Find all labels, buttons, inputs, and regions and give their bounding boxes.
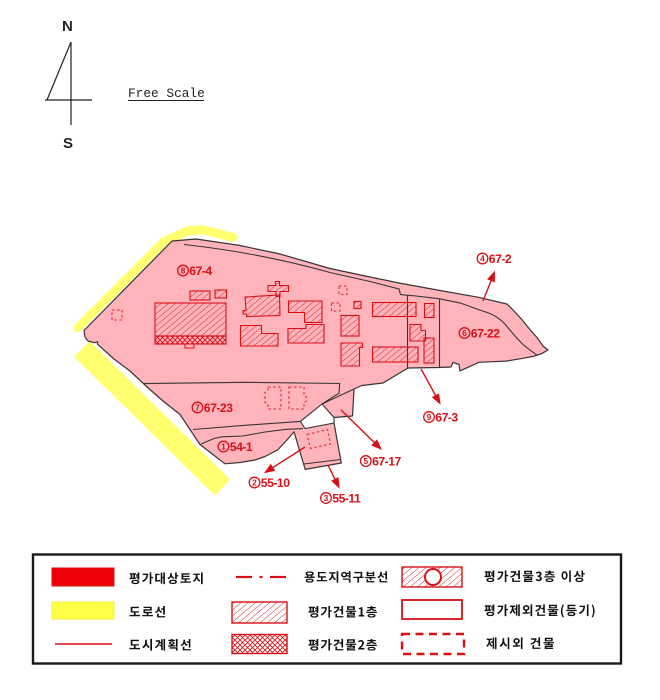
- svg-text:4: 4: [480, 254, 485, 264]
- svg-text:67-4: 67-4: [189, 264, 212, 278]
- svg-text:S: S: [63, 135, 73, 152]
- svg-text:55-10: 55-10: [261, 476, 290, 490]
- svg-text:9: 9: [427, 412, 432, 422]
- svg-text:5: 5: [363, 456, 368, 466]
- svg-text:8: 8: [181, 266, 186, 276]
- svg-text:67-17: 67-17: [372, 454, 401, 468]
- svg-text:Free Scale: Free Scale: [128, 86, 205, 101]
- svg-text:1: 1: [221, 442, 226, 452]
- svg-text:54-1: 54-1: [230, 440, 253, 454]
- svg-text:67-22: 67-22: [471, 326, 500, 340]
- svg-text:67-2: 67-2: [489, 252, 512, 266]
- svg-text:6: 6: [462, 328, 467, 338]
- svg-text:N: N: [62, 18, 73, 35]
- svg-text:3: 3: [324, 493, 329, 503]
- svg-text:2: 2: [252, 478, 257, 488]
- svg-text:55-11: 55-11: [332, 491, 361, 505]
- svg-text:7: 7: [195, 403, 200, 413]
- svg-text:67-3: 67-3: [435, 410, 458, 424]
- svg-text:67-23: 67-23: [204, 401, 233, 415]
